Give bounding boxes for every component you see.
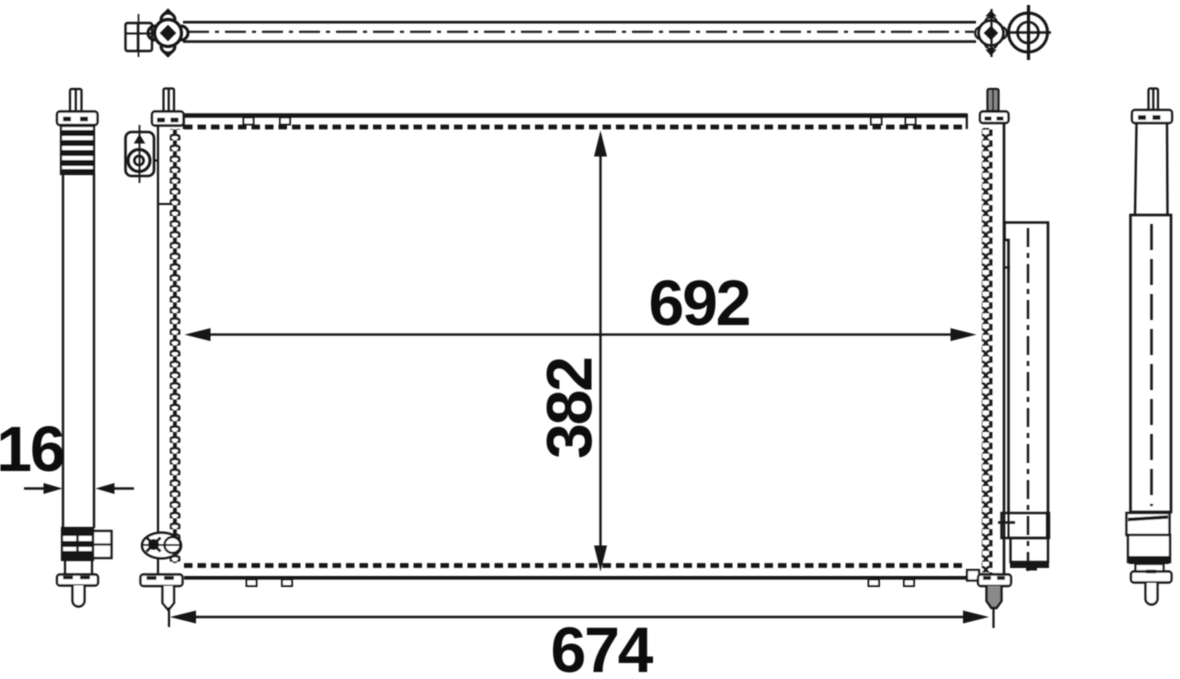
svg-text:382: 382: [534, 358, 606, 459]
svg-text:692: 692: [649, 267, 750, 339]
svg-text:16: 16: [0, 413, 64, 485]
svg-text:674: 674: [551, 614, 654, 679]
